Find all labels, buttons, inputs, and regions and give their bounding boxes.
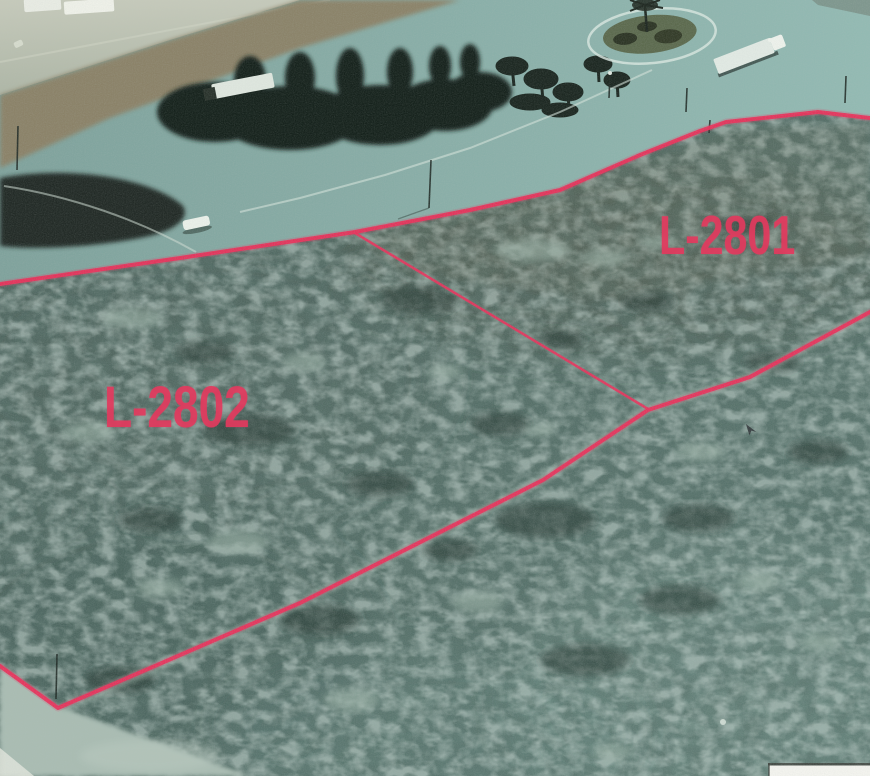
parcel-label-l2802: L-2802 [104,377,250,436]
parcel-label-l2801: L-2801 [659,209,795,264]
aerial-photo: L-2801 L-2802 [0,0,870,776]
